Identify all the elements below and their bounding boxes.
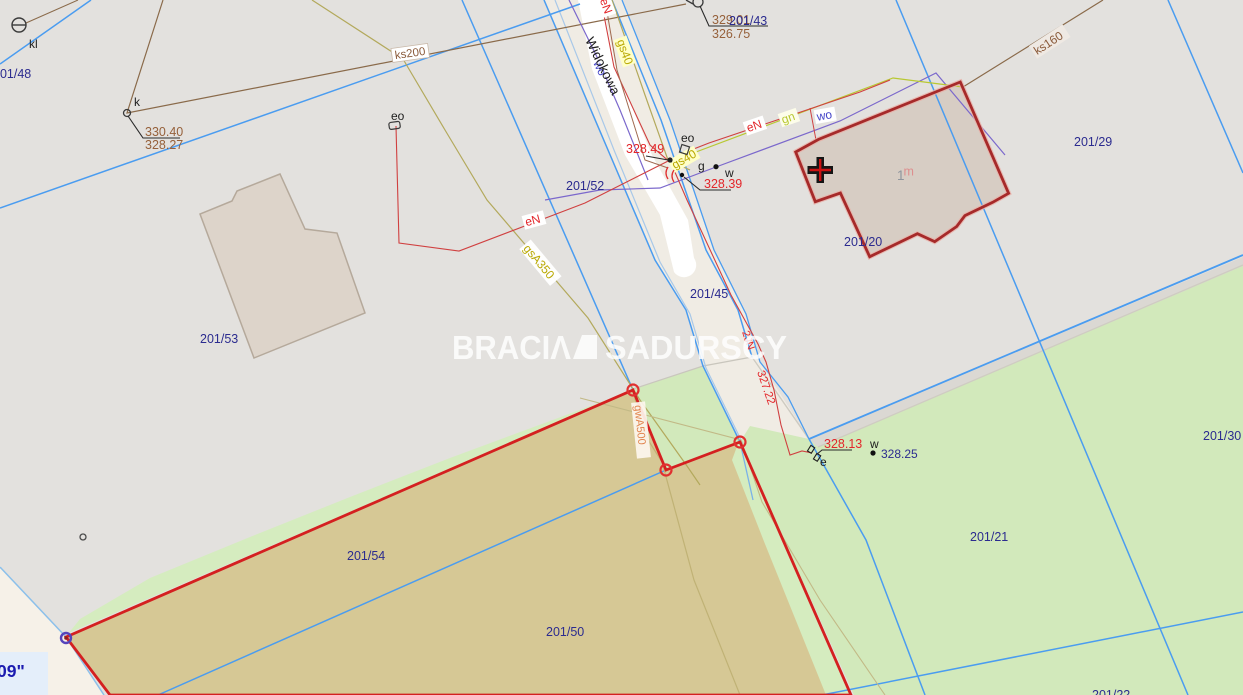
svg-text:201/43: 201/43 bbox=[729, 14, 767, 28]
svg-text:328.39: 328.39 bbox=[704, 177, 742, 191]
svg-text:201/29: 201/29 bbox=[1074, 135, 1112, 149]
svg-text:201/54: 201/54 bbox=[347, 549, 385, 563]
svg-text:201/45: 201/45 bbox=[690, 287, 728, 301]
svg-text:w: w bbox=[869, 437, 879, 451]
svg-text:328.49: 328.49 bbox=[626, 142, 664, 156]
svg-text:201/22: 201/22 bbox=[1092, 688, 1130, 695]
svg-text:SADURSCY: SADURSCY bbox=[605, 329, 787, 366]
svg-text:328.27: 328.27 bbox=[145, 138, 183, 152]
svg-text:BRACIΛ: BRACIΛ bbox=[452, 329, 571, 366]
svg-text:eo: eo bbox=[681, 131, 695, 145]
svg-text:09": 09" bbox=[0, 661, 25, 681]
svg-text:e: e bbox=[820, 455, 827, 469]
svg-text:328.13: 328.13 bbox=[824, 437, 862, 451]
svg-text:kl: kl bbox=[29, 37, 38, 51]
svg-text:326.75: 326.75 bbox=[712, 27, 750, 41]
svg-text:m: m bbox=[904, 165, 914, 179]
svg-text:201/20: 201/20 bbox=[844, 235, 882, 249]
svg-text:201/48: 201/48 bbox=[0, 67, 31, 81]
svg-text:328.25: 328.25 bbox=[881, 447, 918, 461]
svg-text:201/53: 201/53 bbox=[200, 332, 238, 346]
svg-text:201/50: 201/50 bbox=[546, 625, 584, 639]
svg-text:201/21: 201/21 bbox=[970, 530, 1008, 544]
svg-text:wo: wo bbox=[815, 107, 834, 124]
svg-text:201/52: 201/52 bbox=[566, 179, 604, 193]
svg-text:201/30: 201/30 bbox=[1203, 429, 1241, 443]
svg-text:k: k bbox=[134, 95, 141, 109]
svg-text:g: g bbox=[698, 159, 705, 173]
svg-text:330.40: 330.40 bbox=[145, 125, 183, 139]
